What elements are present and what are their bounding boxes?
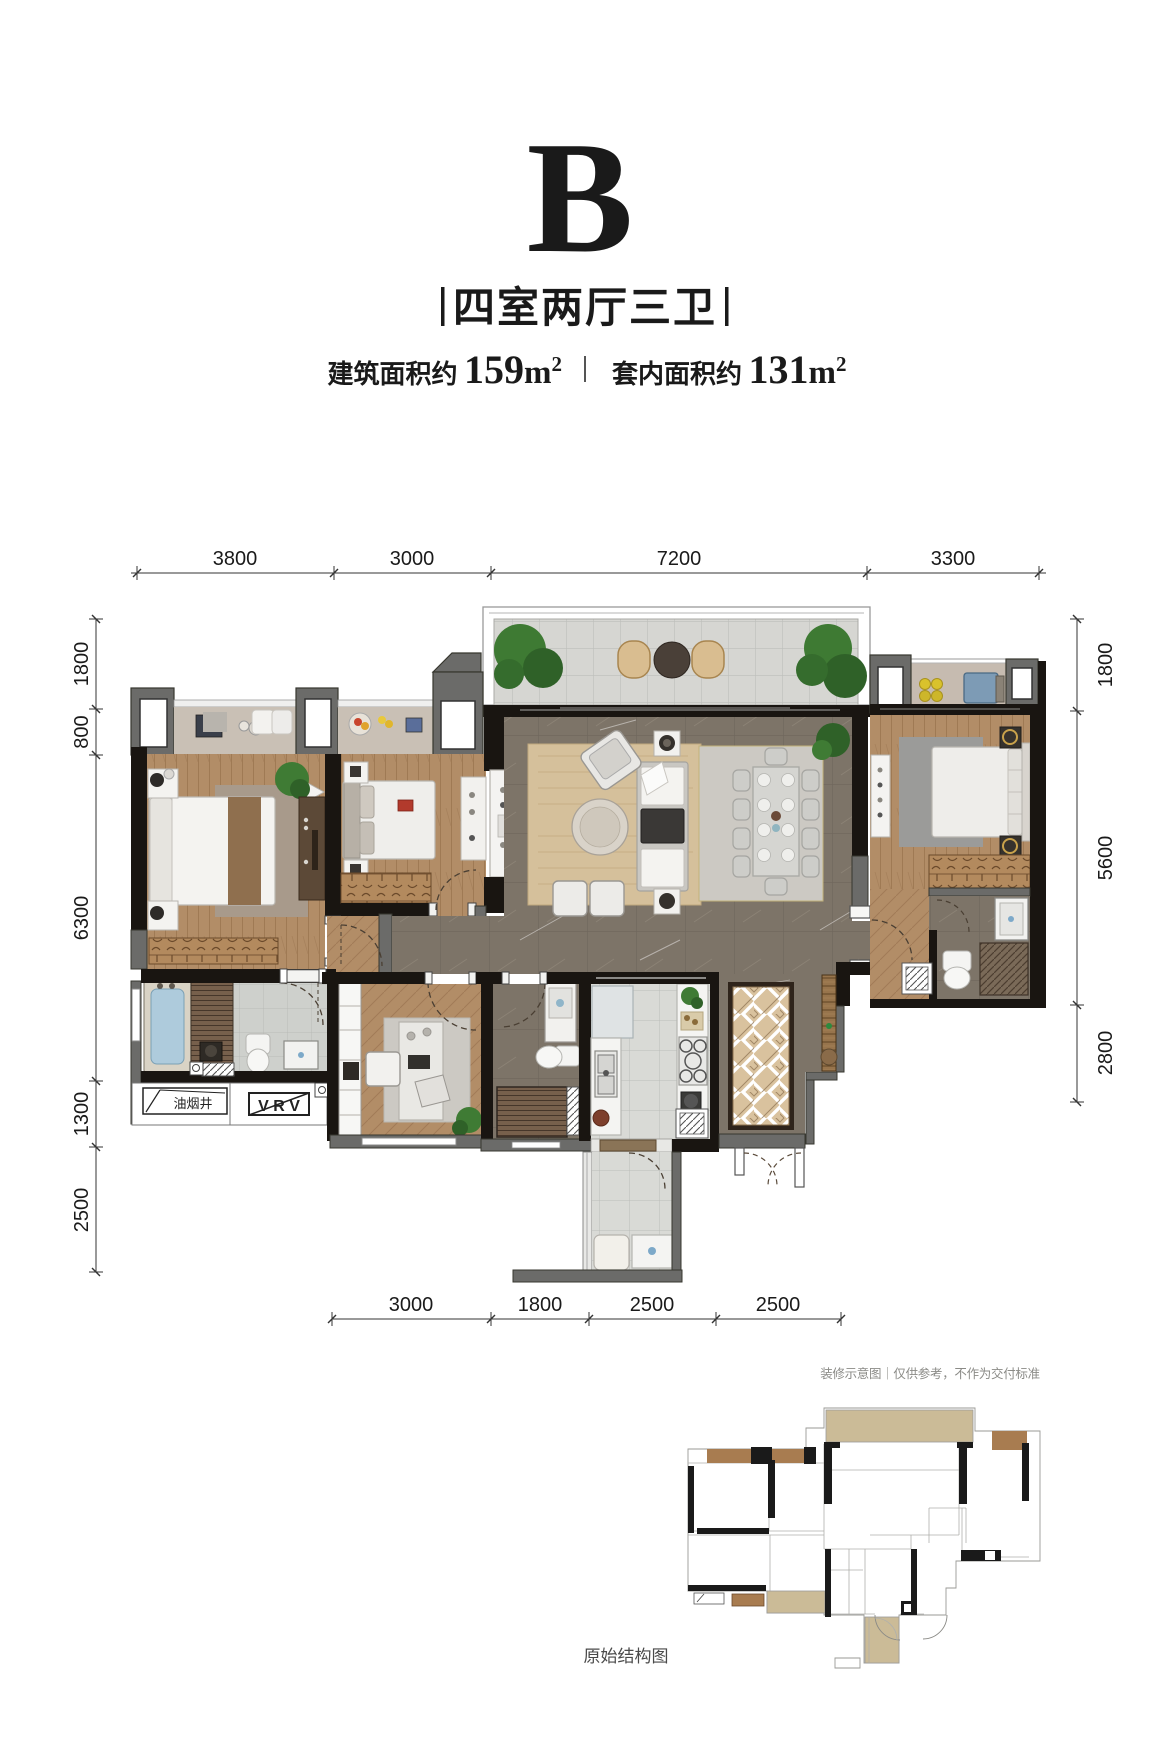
svg-text:油烟井: 油烟井 [173,1096,212,1111]
svg-text:2500: 2500 [630,1294,675,1316]
svg-text:建筑面积约 159m2: 建筑面积约 159m2 [327,347,562,392]
svg-text:1800: 1800 [1095,643,1117,688]
svg-text:1800: 1800 [71,642,93,687]
svg-text:3800: 3800 [213,548,258,570]
svg-text:2500: 2500 [756,1294,801,1316]
svg-text:5600: 5600 [1095,836,1117,881]
svg-text:3000: 3000 [389,1294,434,1316]
svg-text:3000: 3000 [390,548,435,570]
svg-text:V R V: V R V [258,1098,300,1115]
svg-text:2800: 2800 [1095,1031,1117,1076]
svg-text:2500: 2500 [71,1188,93,1233]
svg-text:7200: 7200 [657,548,702,570]
svg-text:3300: 3300 [931,548,976,570]
svg-text:B: B [527,108,634,286]
svg-text:装修示意图｜仅供参考，不作为交付标准: 装修示意图｜仅供参考，不作为交付标准 [820,1366,1040,1381]
svg-text:原始结构图: 原始结构图 [584,1647,669,1666]
svg-text:四室两厅三卫: 四室两厅三卫 [453,285,717,332]
svg-text:1800: 1800 [518,1294,563,1316]
svg-text:6300: 6300 [71,896,93,941]
svg-text:800: 800 [71,715,93,748]
svg-text:1300: 1300 [71,1092,93,1137]
svg-text:套内面积约 131m2: 套内面积约 131m2 [612,347,847,392]
